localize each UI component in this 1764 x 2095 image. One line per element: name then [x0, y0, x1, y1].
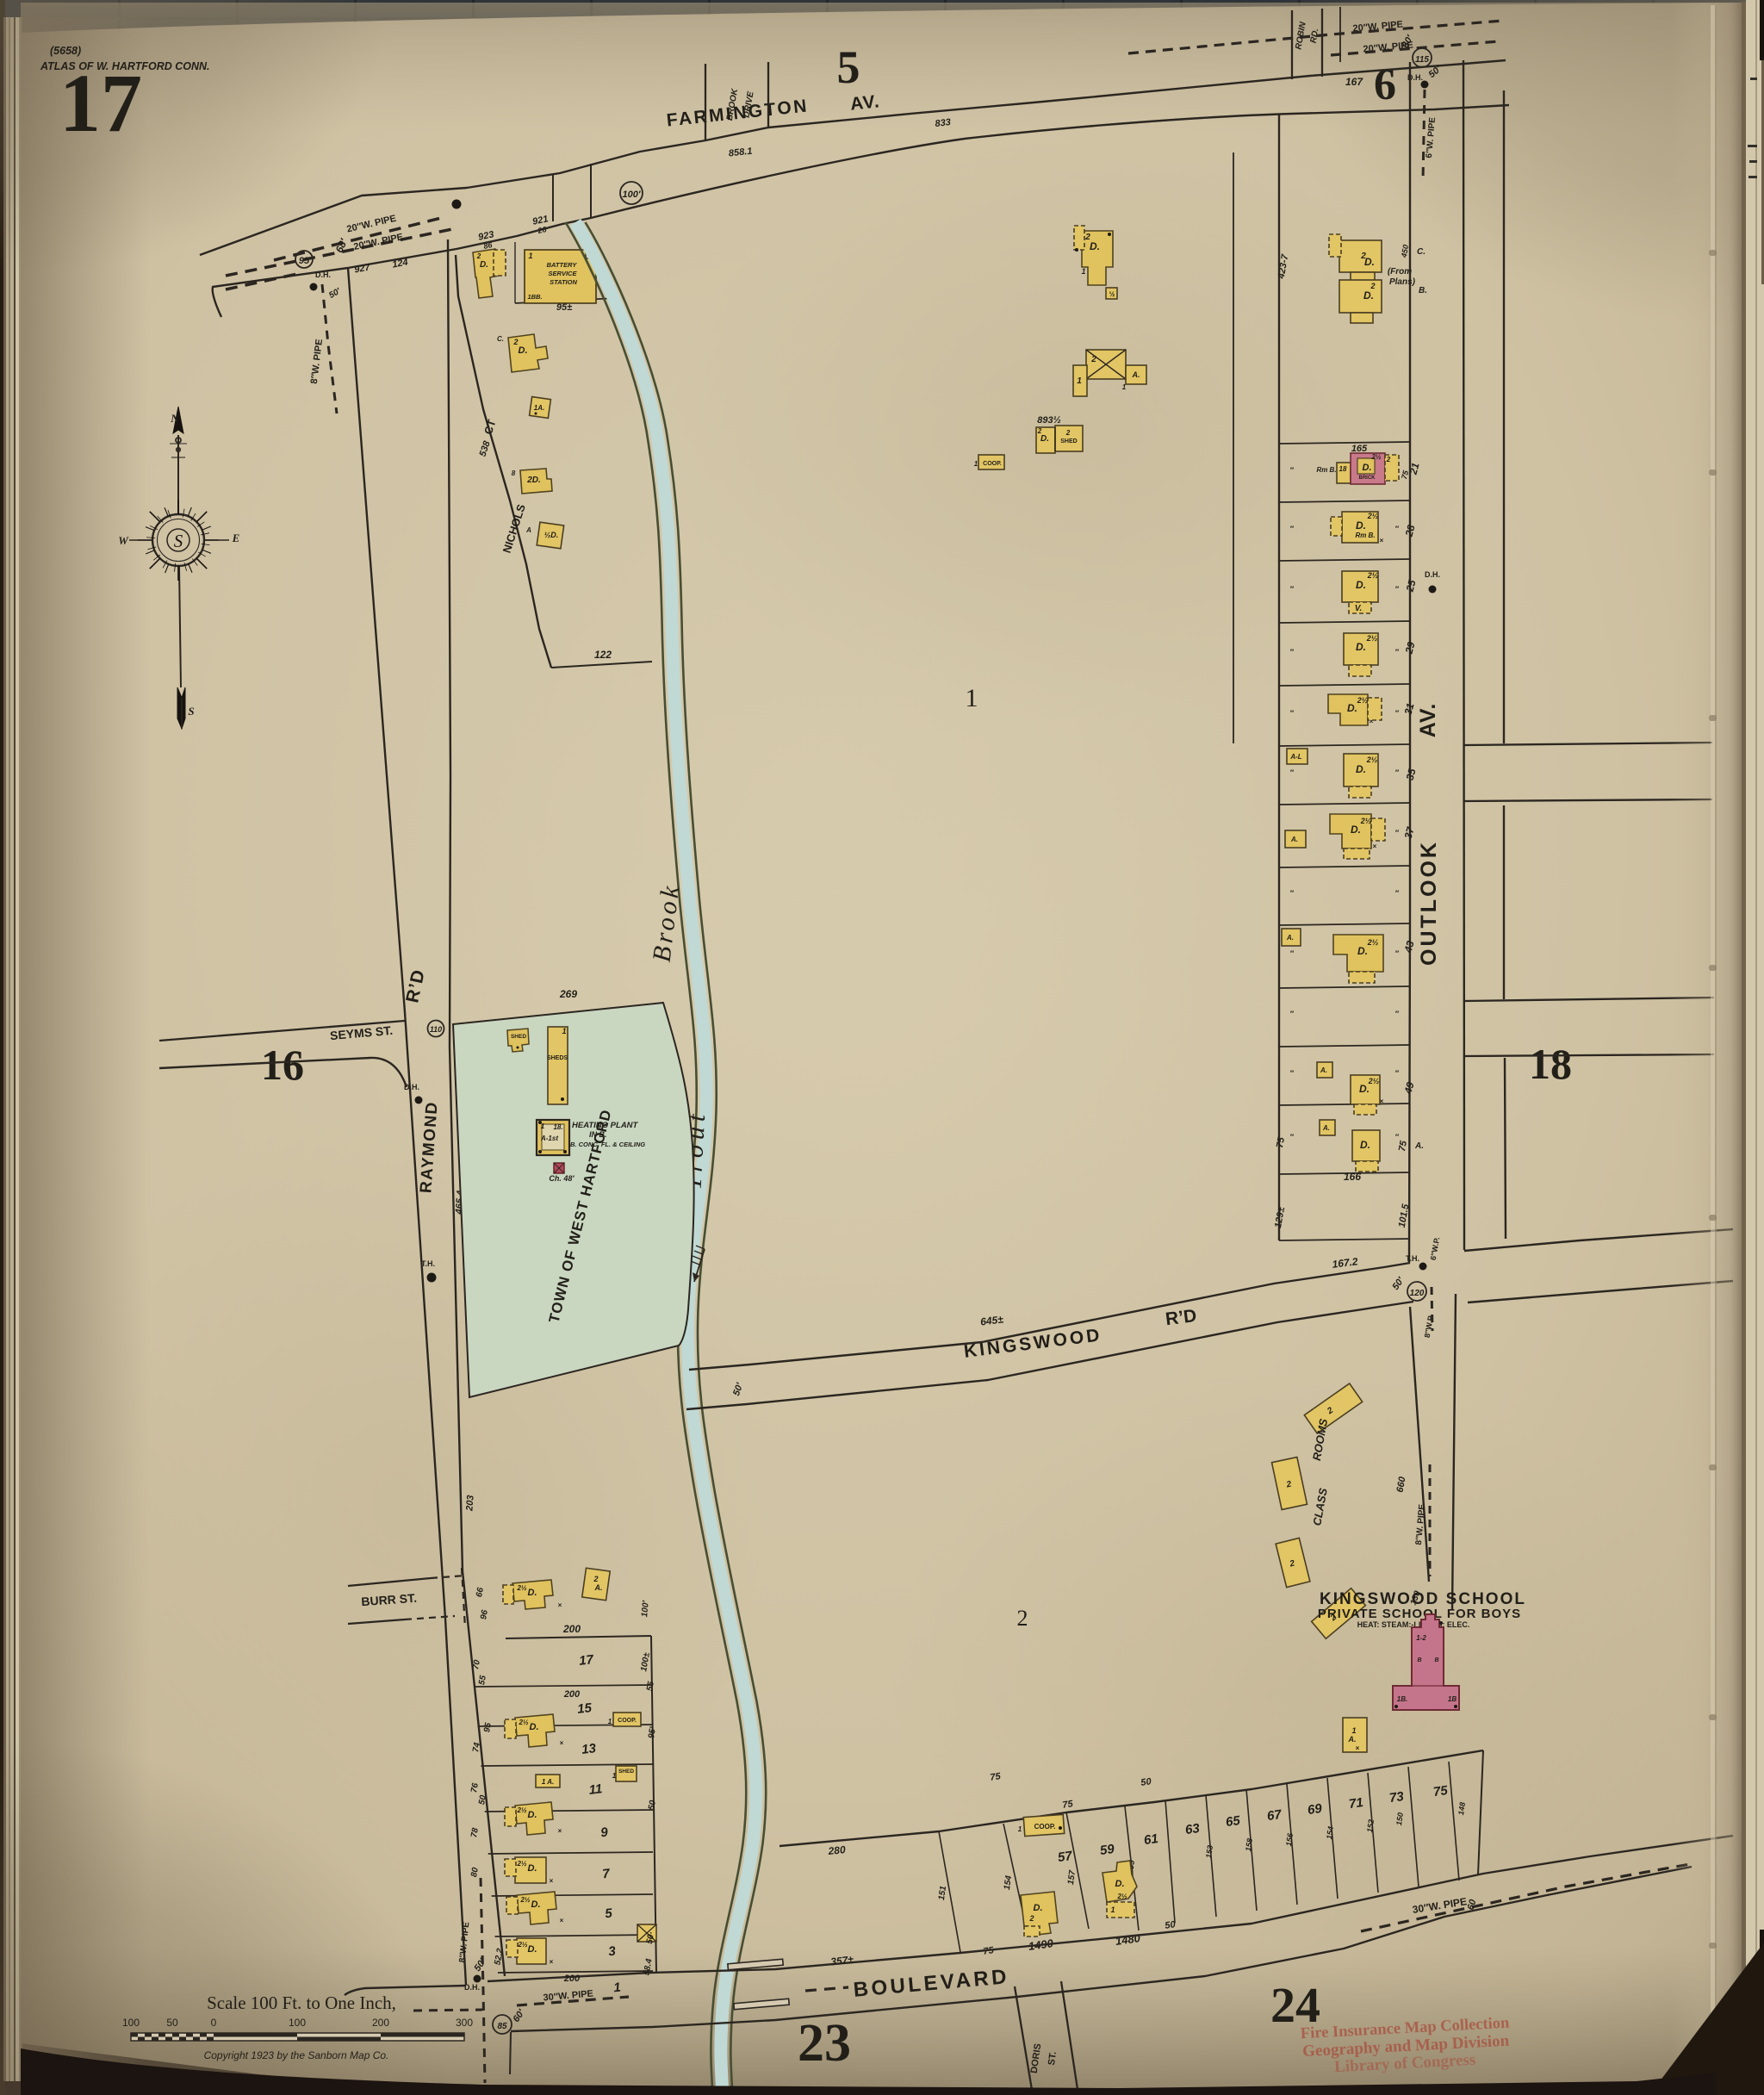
svg-text:D.: D.: [1360, 1139, 1370, 1151]
svg-text:166: 166: [1344, 1171, 1361, 1183]
svg-text:1 A.: 1 A.: [542, 1778, 554, 1786]
svg-text:2: 2: [1370, 282, 1375, 290]
svg-text:SHED: SHED: [511, 1034, 526, 1040]
svg-text:B. CONC. FL. & CEILING: B. CONC. FL. & CEILING: [570, 1141, 645, 1148]
svg-text:200: 200: [563, 1974, 581, 1984]
svg-text:2: 2: [1037, 427, 1042, 435]
svg-text:″: ″: [1290, 1133, 1295, 1141]
svg-text:×: ×: [558, 1601, 562, 1609]
svg-text:D.: D.: [1364, 256, 1375, 268]
svg-text:2½: 2½: [1357, 696, 1369, 705]
svg-text:0: 0: [211, 2017, 217, 2029]
svg-text:A.: A.: [1290, 836, 1298, 843]
svg-text:200: 200: [563, 1689, 581, 1700]
svg-text:D.: D.: [1356, 519, 1366, 532]
svg-text:2: 2: [512, 338, 518, 346]
svg-text:2: 2: [1017, 1606, 1028, 1631]
svg-text:2: 2: [1028, 1914, 1034, 1923]
svg-text:Copyright 1923 by the Sanborn: Copyright 1923 by the Sanborn Map Co.: [204, 2049, 389, 2061]
svg-text:D.: D.: [1356, 641, 1366, 653]
svg-text:100′: 100′: [640, 1600, 651, 1618]
svg-text:2½: 2½: [1366, 755, 1378, 764]
svg-text:2: 2: [476, 252, 481, 260]
svg-text:COOP.: COOP.: [983, 461, 1002, 467]
svg-text:D.: D.: [528, 1810, 537, 1820]
svg-text:AV.: AV.: [849, 91, 881, 114]
svg-text:″: ″: [1395, 585, 1400, 594]
svg-text:18: 18: [1529, 1040, 1572, 1088]
svg-text:KINGSWOOD SCHOOL: KINGSWOOD SCHOOL: [1320, 1590, 1526, 1608]
svg-text:Ch. 48′: Ch. 48′: [549, 1174, 575, 1183]
svg-text:ST.: ST.: [1047, 2051, 1059, 2066]
svg-text:A.: A.: [1414, 1141, 1424, 1151]
svg-text:″: ″: [1290, 1069, 1295, 1078]
svg-text:A.: A.: [594, 1583, 603, 1592]
svg-text:154: 154: [1325, 1825, 1335, 1839]
svg-text:11: 11: [588, 1781, 603, 1798]
svg-text:1: 1: [562, 1027, 566, 1035]
svg-text:A.: A.: [1286, 934, 1294, 942]
svg-text:148: 148: [1457, 1801, 1467, 1815]
svg-text:C.: C.: [1417, 247, 1425, 257]
svg-text:D.: D.: [530, 1722, 539, 1732]
svg-text:1: 1: [612, 1772, 617, 1780]
svg-text:STATION: STATION: [550, 278, 577, 286]
svg-text:″: ″: [1290, 466, 1295, 475]
svg-text:1: 1: [1077, 376, 1082, 386]
svg-text:×: ×: [560, 1917, 564, 1924]
svg-text:357±: 357±: [830, 1954, 854, 1968]
svg-text:D.: D.: [1090, 240, 1100, 252]
svg-text:100′: 100′: [623, 190, 642, 200]
svg-text:2½: 2½: [1116, 1893, 1127, 1900]
svg-text:D.: D.: [531, 1899, 541, 1910]
svg-text:D.: D.: [1040, 434, 1049, 444]
svg-text:SHEDS: SHEDS: [547, 1055, 568, 1061]
svg-text:×: ×: [550, 1958, 554, 1966]
svg-text:2: 2: [1090, 355, 1096, 364]
svg-text:D.: D.: [1363, 463, 1372, 473]
svg-text:2D.: 2D.: [526, 476, 541, 485]
svg-text:1: 1: [608, 1718, 612, 1725]
svg-text:(From: (From: [1388, 267, 1412, 277]
svg-text:16: 16: [261, 1041, 304, 1089]
svg-text:69: 69: [1307, 1801, 1324, 1818]
svg-text:A.: A.: [1348, 1735, 1357, 1744]
svg-text:C.: C.: [497, 335, 504, 343]
svg-text:″: ″: [1290, 949, 1295, 958]
svg-text:COOP.: COOP.: [1034, 1823, 1056, 1831]
svg-text:SHED: SHED: [1060, 438, 1077, 444]
svg-text:D.: D.: [528, 1588, 537, 1598]
svg-text:158: 158: [1244, 1837, 1254, 1851]
svg-text:2: 2: [593, 1575, 598, 1583]
svg-text:D.: D.: [1115, 1879, 1125, 1889]
svg-text:2½: 2½: [1360, 817, 1372, 825]
svg-text:BATTERY: BATTERY: [547, 261, 578, 269]
svg-text:2½: 2½: [1367, 938, 1379, 947]
svg-text:13: 13: [581, 1741, 597, 1757]
svg-text:1A.: 1A.: [534, 404, 544, 412]
svg-text:269: 269: [559, 988, 577, 1000]
svg-text:2½: 2½: [1366, 634, 1378, 643]
svg-text:″: ″: [1395, 648, 1400, 656]
svg-text:D.H.: D.H.: [464, 1983, 480, 1992]
svg-text:1: 1: [1351, 1726, 1356, 1735]
svg-text:2½: 2½: [1367, 571, 1379, 580]
svg-text:″: ″: [1395, 709, 1400, 718]
svg-text:2½: 2½: [517, 1941, 527, 1949]
svg-text:67: 67: [1266, 1807, 1283, 1824]
svg-text:D.: D.: [1034, 1903, 1043, 1913]
svg-text:D.: D.: [519, 345, 528, 356]
svg-text:T.H.: T.H.: [1406, 1254, 1419, 1263]
svg-text:61: 61: [1143, 1831, 1159, 1848]
svg-text:2½: 2½: [1370, 453, 1381, 461]
svg-text:152: 152: [1365, 1818, 1376, 1832]
svg-text:120: 120: [1410, 1289, 1425, 1298]
svg-text:300: 300: [456, 2017, 473, 2029]
svg-text:1-2: 1-2: [1416, 1634, 1426, 1642]
svg-text:2: 2: [1084, 233, 1090, 242]
svg-text:″: ″: [1290, 1010, 1295, 1018]
svg-text:″: ″: [1395, 768, 1400, 777]
svg-text:V.: V.: [1355, 604, 1363, 613]
svg-text:D.: D.: [1351, 824, 1361, 836]
svg-text:×: ×: [1380, 537, 1384, 544]
svg-text:2½: 2½: [1368, 1077, 1380, 1085]
svg-text:1B.: 1B.: [1397, 1695, 1407, 1703]
svg-text:D.: D.: [1347, 702, 1357, 714]
svg-text:2½: 2½: [516, 1860, 526, 1868]
svg-text:Rm B.: Rm B.: [1355, 532, 1375, 539]
svg-text:″: ″: [1290, 585, 1295, 594]
svg-text:D.: D.: [528, 1944, 537, 1955]
svg-text:″: ″: [1395, 1069, 1400, 1078]
svg-text:A.: A.: [1132, 370, 1140, 379]
svg-text:″: ″: [1395, 525, 1400, 533]
svg-text:153: 153: [1204, 1844, 1214, 1858]
svg-text:1: 1: [966, 684, 978, 712]
svg-text:BRICK: BRICK: [1359, 476, 1376, 481]
svg-text:A-L: A-L: [1289, 753, 1301, 761]
svg-text:A.: A.: [1322, 1124, 1330, 1132]
svg-text:167: 167: [1345, 76, 1363, 88]
svg-text:280: 280: [827, 1843, 847, 1857]
svg-text:″: ″: [1395, 1010, 1400, 1018]
svg-text:A.: A.: [1320, 1066, 1327, 1074]
svg-text:″: ″: [1290, 525, 1295, 533]
svg-text:COOP.: COOP.: [618, 1718, 637, 1724]
svg-text:E: E: [232, 532, 240, 544]
svg-text:71: 71: [1348, 1795, 1364, 1812]
svg-text:Plans): Plans): [1389, 277, 1416, 287]
svg-text:×: ×: [1373, 842, 1377, 850]
svg-text:D.H.: D.H.: [315, 270, 331, 279]
svg-text:203: 203: [464, 1495, 475, 1512]
svg-text:15: 15: [576, 1700, 593, 1717]
svg-text:S: S: [188, 705, 194, 718]
svg-text:2½: 2½: [519, 1896, 530, 1904]
svg-text:A-1st: A-1st: [540, 1135, 558, 1142]
svg-text:″: ″: [1290, 889, 1295, 898]
svg-text:95: 95: [299, 256, 310, 266]
svg-text:PRIVATE SCHOOL FOR BOYS: PRIVATE SCHOOL FOR BOYS: [1318, 1607, 1521, 1621]
svg-text:8: 8: [512, 469, 516, 477]
svg-text:1BB.: 1BB.: [527, 293, 542, 301]
svg-text:2½: 2½: [518, 1719, 528, 1726]
svg-text:1: 1: [1081, 267, 1085, 276]
svg-text:×: ×: [550, 1877, 554, 1885]
svg-text:5: 5: [837, 41, 860, 93]
svg-text:122: 122: [594, 649, 612, 661]
svg-text:B: B: [1434, 1657, 1438, 1663]
svg-text:1: 1: [541, 1122, 545, 1130]
svg-text:65: 65: [1225, 1813, 1242, 1830]
svg-text:893½: 893½: [1037, 415, 1061, 426]
svg-text:2: 2: [1065, 429, 1071, 437]
svg-text:150: 150: [1394, 1812, 1405, 1825]
svg-text:×: ×: [560, 1739, 564, 1747]
svg-text:S: S: [174, 531, 183, 551]
svg-text:½: ½: [1109, 290, 1115, 298]
svg-text:57: 57: [1057, 1849, 1074, 1865]
svg-text:75: 75: [1432, 1783, 1450, 1800]
svg-text:″: ″: [1290, 709, 1295, 718]
svg-text:1: 1: [974, 460, 978, 468]
svg-text:×: ×: [1356, 1744, 1360, 1752]
svg-text:18.: 18.: [553, 1123, 562, 1131]
svg-text:1: 1: [612, 1980, 621, 1996]
svg-text:N: N: [170, 412, 179, 425]
svg-text:100: 100: [289, 2017, 306, 2029]
svg-text:1: 1: [1018, 1825, 1022, 1833]
svg-text:1: 1: [1122, 383, 1127, 391]
svg-text:D.: D.: [1356, 763, 1366, 775]
svg-text:1: 1: [528, 252, 532, 260]
svg-text:D.: D.: [1357, 945, 1368, 957]
svg-text:T.H.: T.H.: [421, 1259, 435, 1268]
svg-text:2½: 2½: [1367, 512, 1379, 520]
svg-text:18: 18: [1339, 465, 1347, 473]
svg-text:2: 2: [1386, 456, 1391, 463]
svg-text:2½: 2½: [516, 1806, 526, 1814]
svg-text:A: A: [525, 526, 531, 534]
svg-text:″: ″: [1290, 768, 1295, 777]
svg-text:200: 200: [562, 1623, 581, 1635]
svg-text:OUTLOOK: OUTLOOK: [1417, 840, 1441, 966]
svg-text:×: ×: [558, 1827, 562, 1835]
svg-text:D.H.: D.H.: [1425, 570, 1440, 579]
svg-text:59: 59: [1099, 1842, 1116, 1858]
svg-text:50: 50: [166, 2017, 178, 2029]
svg-text:D.: D.: [1363, 289, 1374, 302]
svg-text:D.: D.: [480, 260, 488, 270]
svg-text:″: ″: [1395, 889, 1400, 898]
svg-text:Scale 100 Ft. to One Inch,: Scale 100 Ft. to One Inch,: [207, 1992, 396, 2013]
svg-text:17: 17: [578, 1652, 594, 1669]
svg-text:D.: D.: [1356, 579, 1366, 591]
svg-text:100: 100: [122, 2017, 140, 2029]
svg-text:AV.: AV.: [1416, 703, 1440, 738]
svg-text:115: 115: [1415, 55, 1429, 65]
svg-text:200: 200: [372, 2017, 389, 2029]
svg-text:SERVICE: SERVICE: [549, 270, 578, 277]
svg-text:95±: 95±: [556, 302, 572, 313]
svg-text:2½: 2½: [516, 1584, 526, 1592]
svg-text:17: 17: [59, 57, 142, 149]
svg-text:B: B: [1417, 1657, 1421, 1663]
svg-text:½D.: ½D.: [544, 531, 559, 539]
svg-text:833: 833: [935, 117, 952, 129]
svg-text:73: 73: [1388, 1789, 1406, 1806]
svg-text:″: ″: [1395, 949, 1400, 958]
svg-text:110: 110: [430, 1025, 442, 1034]
svg-text:6: 6: [1374, 60, 1396, 109]
svg-text:63: 63: [1184, 1821, 1202, 1837]
svg-text:B.: B.: [1419, 286, 1427, 295]
svg-text:Rm B.: Rm B.: [1316, 466, 1336, 474]
svg-text:1B: 1B: [1448, 1695, 1457, 1703]
svg-text:(5658): (5658): [50, 45, 81, 57]
svg-text:1: 1: [1110, 1905, 1115, 1914]
svg-text:″: ″: [1395, 829, 1400, 837]
svg-text:R’D: R’D: [1165, 1306, 1198, 1329]
svg-text:″: ″: [1290, 648, 1295, 656]
svg-text:SHED: SHED: [618, 1769, 634, 1775]
svg-text:W: W: [118, 534, 129, 547]
svg-text:85: 85: [497, 2022, 507, 2031]
svg-text:23: 23: [798, 2014, 851, 2073]
svg-text:D.: D.: [528, 1863, 537, 1874]
